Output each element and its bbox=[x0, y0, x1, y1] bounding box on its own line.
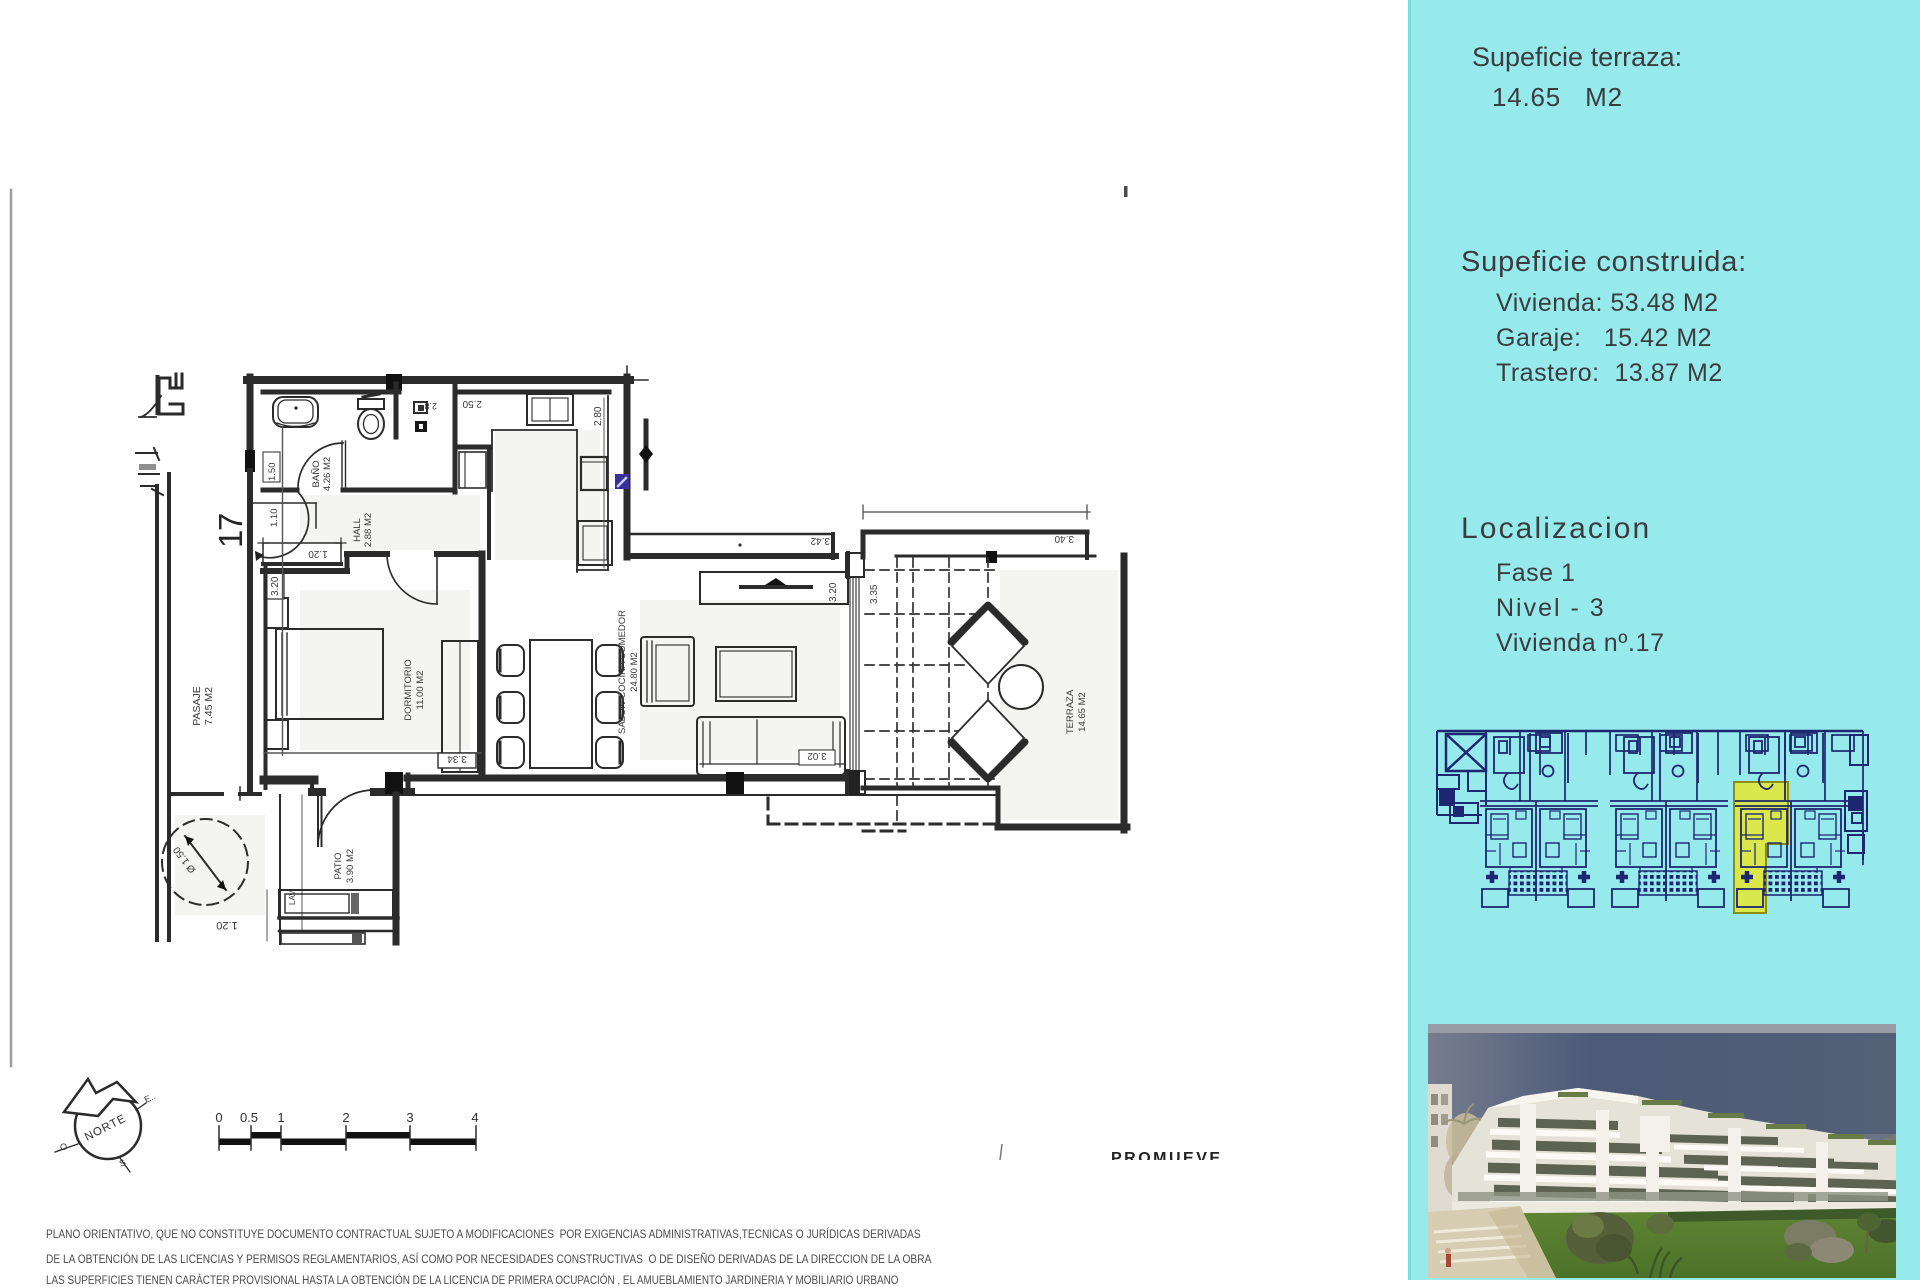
svg-text:1.20: 1.20 bbox=[216, 919, 237, 931]
svg-text:TERRAZA: TERRAZA bbox=[1065, 689, 1076, 734]
svg-text:2.8: 2.8 bbox=[424, 401, 437, 411]
svg-text:2.88 M2: 2.88 M2 bbox=[363, 513, 374, 547]
svg-text:1.20: 1.20 bbox=[308, 548, 328, 559]
svg-text:SALON-COCINA COMEDOR: SALON-COCINA COMEDOR bbox=[617, 610, 628, 734]
svg-text:4: 4 bbox=[471, 1110, 478, 1125]
svg-text:1.50: 1.50 bbox=[267, 463, 278, 482]
svg-text:3: 3 bbox=[406, 1110, 413, 1125]
svg-text:HALL: HALL bbox=[352, 518, 363, 542]
svg-text:7.45 M2: 7.45 M2 bbox=[203, 687, 215, 725]
svg-text:2: 2 bbox=[342, 1110, 349, 1125]
svg-text:3.20: 3.20 bbox=[270, 576, 281, 596]
svg-text:E..: E.. bbox=[143, 1091, 157, 1105]
svg-text:DORMITORIO: DORMITORIO bbox=[403, 659, 414, 721]
svg-text:3.20: 3.20 bbox=[828, 582, 839, 602]
svg-text:1: 1 bbox=[277, 1110, 284, 1125]
svg-text:3.42: 3.42 bbox=[810, 535, 830, 546]
svg-text:PASAJE: PASAJE bbox=[191, 686, 203, 726]
svg-text:LAV: LAV bbox=[288, 890, 297, 905]
svg-text:3.34: 3.34 bbox=[447, 753, 467, 764]
svg-text:3.02: 3.02 bbox=[807, 750, 827, 761]
svg-text:0: 0 bbox=[215, 1110, 222, 1125]
svg-text:3.35: 3.35 bbox=[869, 584, 880, 604]
svg-text:O: O bbox=[60, 1142, 67, 1152]
svg-text:1.10: 1.10 bbox=[269, 509, 280, 528]
svg-text:11.00 M2: 11.00 M2 bbox=[415, 671, 426, 710]
svg-text:0.5: 0.5 bbox=[240, 1110, 258, 1125]
svg-text:24.80 M2: 24.80 M2 bbox=[629, 652, 640, 692]
svg-text:17: 17 bbox=[212, 514, 249, 548]
svg-text:2.80: 2.80 bbox=[593, 406, 604, 426]
svg-text:4.26 M2: 4.26 M2 bbox=[322, 457, 333, 491]
svg-text:PATIO: PATIO bbox=[333, 852, 344, 879]
svg-text:3.40: 3.40 bbox=[1054, 533, 1074, 544]
svg-text:14.65 M2: 14.65 M2 bbox=[1077, 692, 1088, 732]
svg-text:3.90 M2: 3.90 M2 bbox=[345, 849, 356, 883]
svg-text:BAÑO: BAÑO bbox=[311, 461, 322, 488]
svg-text:2.50: 2.50 bbox=[462, 398, 482, 409]
